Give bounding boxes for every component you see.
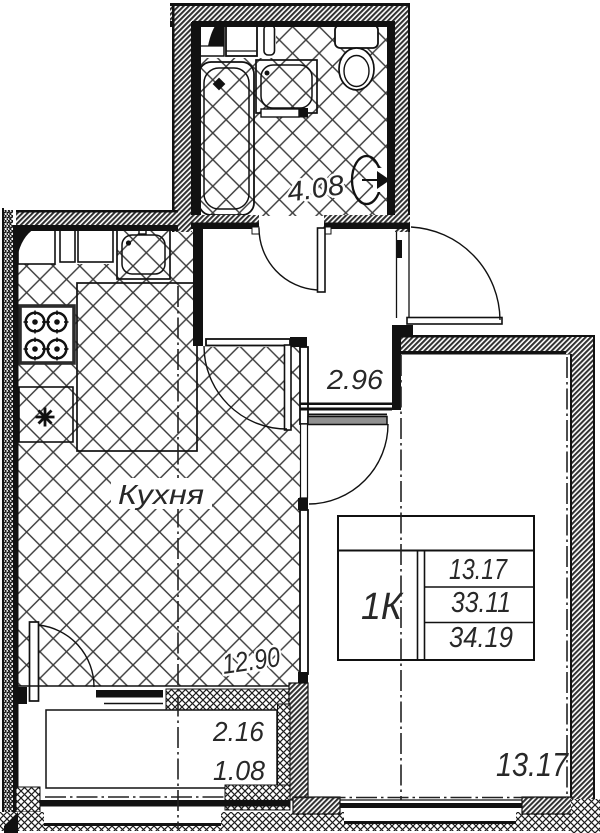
svg-text:13.17: 13.17: [449, 554, 508, 586]
svg-text:2.16: 2.16: [212, 716, 264, 747]
svg-text:33.11: 33.11: [451, 587, 511, 619]
svg-text:Кухня: Кухня: [118, 479, 204, 510]
svg-text:2.96: 2.96: [326, 364, 383, 395]
svg-text:1К: 1К: [361, 586, 404, 628]
svg-text:13.17: 13.17: [496, 746, 569, 783]
svg-text:34.19: 34.19: [449, 622, 513, 654]
svg-text:1.08: 1.08: [213, 755, 265, 786]
